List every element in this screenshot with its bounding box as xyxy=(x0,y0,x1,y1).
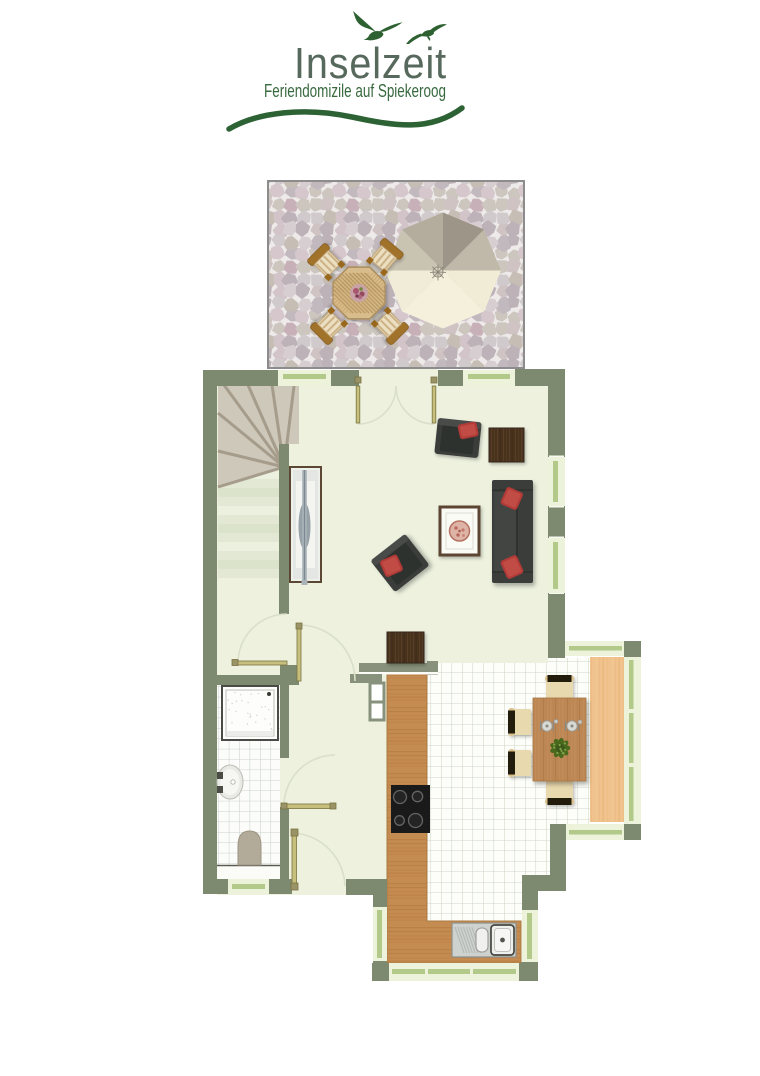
svg-text:Feriendomizile auf Spiekeroog: Feriendomizile auf Spiekeroog xyxy=(264,81,446,101)
